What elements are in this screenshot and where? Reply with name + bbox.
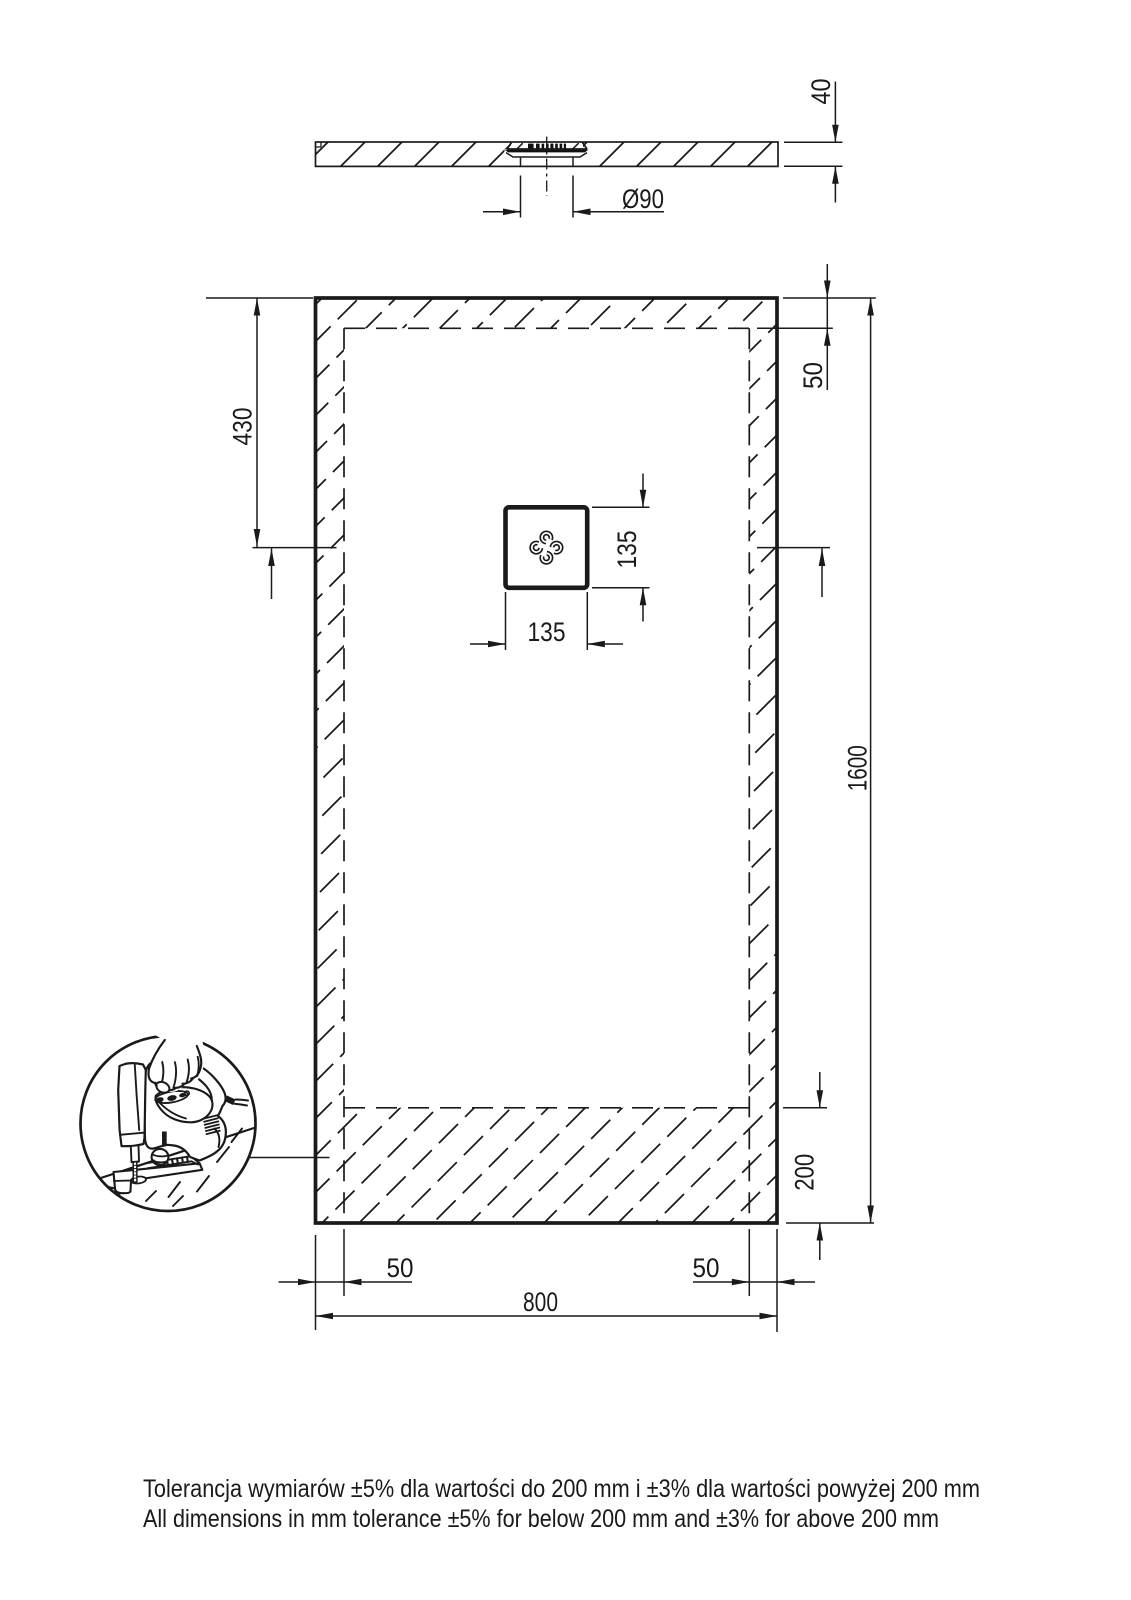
svg-text:All dimensions in mm tolerance: All dimensions in mm tolerance ±5% for b…	[143, 1505, 939, 1533]
svg-text:50: 50	[693, 1253, 720, 1283]
svg-text:Ø90: Ø90	[622, 184, 664, 214]
svg-text:200: 200	[790, 1154, 820, 1191]
svg-text:800: 800	[523, 1287, 558, 1317]
svg-text:50: 50	[387, 1253, 414, 1283]
svg-text:135: 135	[612, 531, 642, 569]
svg-text:Tolerancja wymiarów ±5% dla wa: Tolerancja wymiarów ±5% dla wartości do …	[143, 1475, 980, 1503]
svg-text:40: 40	[806, 79, 836, 105]
svg-text:1600: 1600	[843, 745, 873, 791]
svg-text:50: 50	[798, 362, 828, 389]
svg-text:430: 430	[228, 408, 258, 446]
svg-text:135: 135	[528, 617, 566, 647]
